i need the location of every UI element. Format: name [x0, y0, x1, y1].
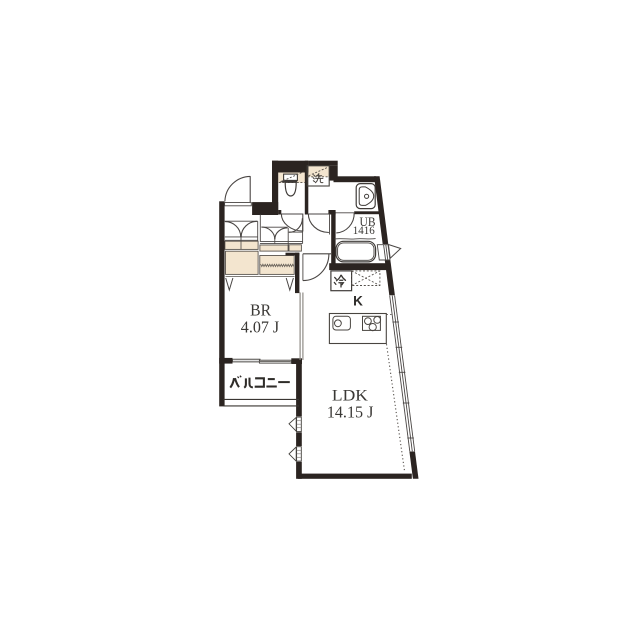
svg-text:4.07 J: 4.07 J [241, 317, 280, 336]
svg-text:14.15 J: 14.15 J [327, 402, 374, 421]
svg-text:1416: 1416 [353, 225, 375, 237]
svg-text:K: K [353, 293, 363, 308]
